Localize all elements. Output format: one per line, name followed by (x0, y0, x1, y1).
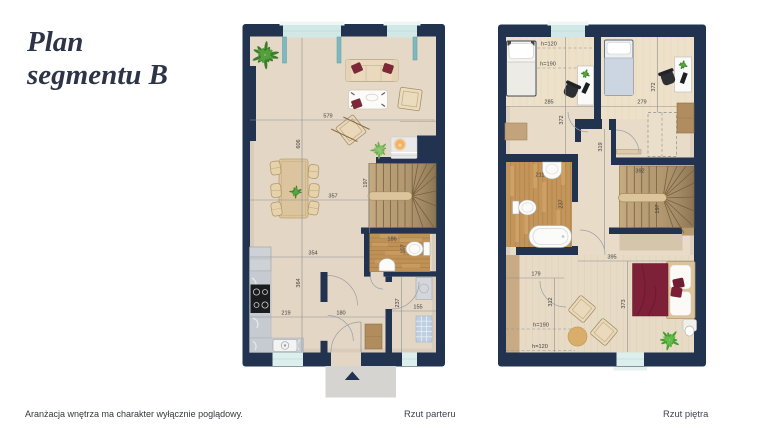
svg-text:279: 279 (637, 100, 646, 106)
svg-text:h=190: h=190 (540, 62, 556, 68)
svg-text:197: 197 (363, 178, 369, 187)
svg-text:180: 180 (336, 311, 345, 317)
svg-text:211: 211 (536, 173, 545, 179)
svg-text:606: 606 (296, 139, 302, 148)
svg-text:186: 186 (387, 237, 396, 243)
svg-text:h=190: h=190 (533, 323, 549, 329)
svg-text:segmentu B: segmentu B (26, 59, 168, 91)
svg-text:312: 312 (548, 297, 554, 306)
svg-text:197: 197 (655, 204, 661, 213)
svg-text:354: 354 (308, 251, 317, 257)
svg-text:155: 155 (413, 305, 422, 311)
svg-text:179: 179 (531, 272, 540, 278)
svg-text:372: 372 (559, 115, 565, 124)
svg-text:357: 357 (328, 194, 337, 200)
svg-text:Aranżacja wnętrza ma charakter: Aranżacja wnętrza ma charakter wyłącznie… (25, 409, 243, 419)
svg-text:372: 372 (651, 82, 657, 91)
svg-text:319: 319 (598, 142, 604, 151)
svg-text:h=120: h=120 (532, 344, 548, 350)
svg-text:364: 364 (296, 278, 302, 287)
svg-text:219: 219 (281, 311, 290, 317)
svg-text:107: 107 (401, 244, 407, 253)
svg-text:373: 373 (621, 299, 627, 308)
svg-text:395: 395 (607, 255, 616, 261)
svg-text:237: 237 (559, 199, 565, 208)
svg-text:579: 579 (323, 114, 332, 120)
svg-text:Rzut parteru: Rzut parteru (404, 408, 456, 419)
svg-text:Plan: Plan (26, 26, 83, 58)
svg-text:285: 285 (544, 100, 553, 106)
svg-text:392: 392 (635, 169, 644, 175)
svg-text:Rzut piętra: Rzut piętra (663, 408, 709, 419)
svg-text:h=120: h=120 (541, 42, 557, 48)
svg-text:237: 237 (395, 298, 401, 307)
